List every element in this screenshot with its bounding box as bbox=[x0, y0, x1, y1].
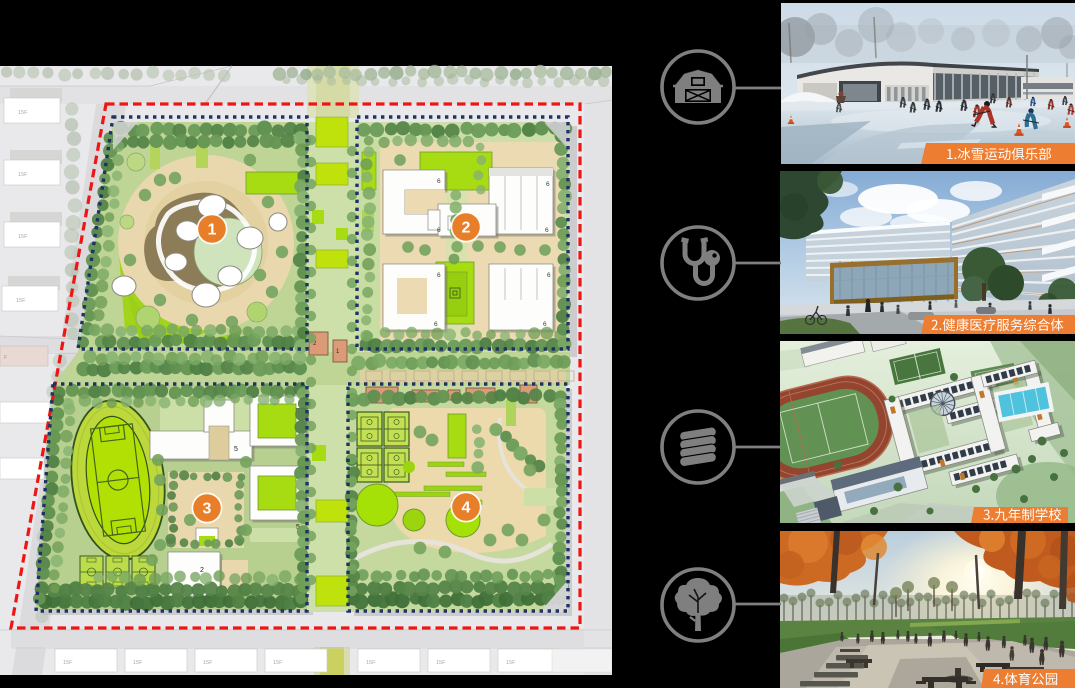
svg-text:15F: 15F bbox=[506, 660, 516, 666]
svg-text:15F: 15F bbox=[18, 234, 28, 240]
svg-text:5: 5 bbox=[234, 446, 238, 453]
svg-text:15F: 15F bbox=[273, 660, 283, 666]
svg-text:15F: 15F bbox=[366, 660, 376, 666]
svg-text:6: 6 bbox=[547, 272, 551, 279]
svg-text:6: 6 bbox=[437, 272, 441, 279]
svg-text:15F: 15F bbox=[18, 110, 28, 116]
svg-text:6: 6 bbox=[545, 227, 549, 234]
svg-text:15F: 15F bbox=[133, 660, 143, 666]
svg-text:6: 6 bbox=[434, 321, 438, 328]
svg-text:15F: 15F bbox=[16, 298, 26, 304]
svg-text:15F: 15F bbox=[203, 660, 213, 666]
svg-text:2: 2 bbox=[462, 220, 471, 237]
svg-text:3: 3 bbox=[203, 501, 212, 518]
svg-text:4: 4 bbox=[462, 500, 471, 517]
svg-text:15F: 15F bbox=[436, 660, 446, 666]
svg-text:15F: 15F bbox=[63, 660, 73, 666]
svg-text:1: 1 bbox=[208, 222, 217, 239]
svg-text:6: 6 bbox=[437, 227, 441, 234]
svg-text:6: 6 bbox=[546, 181, 550, 188]
svg-text:6: 6 bbox=[437, 178, 441, 185]
svg-text:15F: 15F bbox=[18, 172, 28, 178]
